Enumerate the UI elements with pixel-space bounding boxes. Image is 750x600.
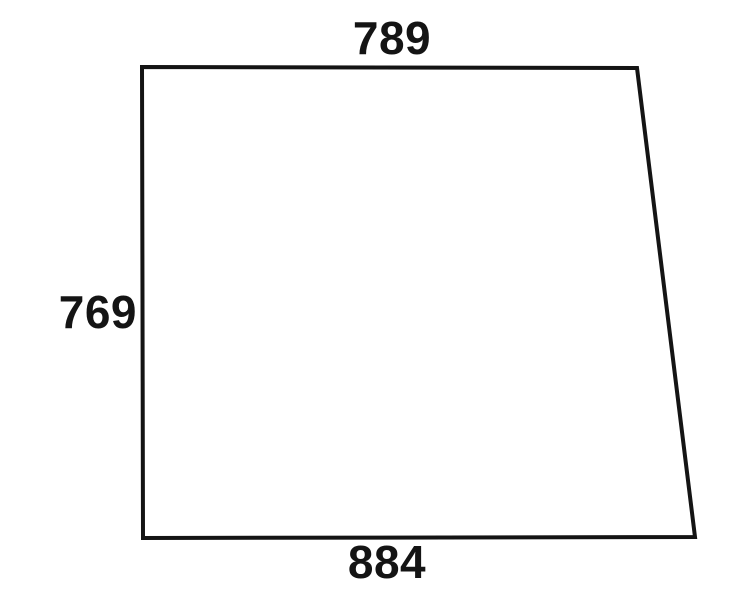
bottom-dimension-label: 884 (348, 536, 426, 589)
dimension-diagram: 789 769 884 (0, 0, 750, 600)
left-dimension-label: 769 (59, 286, 137, 339)
top-dimension-label: 789 (353, 12, 431, 65)
panel-outline (142, 67, 695, 538)
